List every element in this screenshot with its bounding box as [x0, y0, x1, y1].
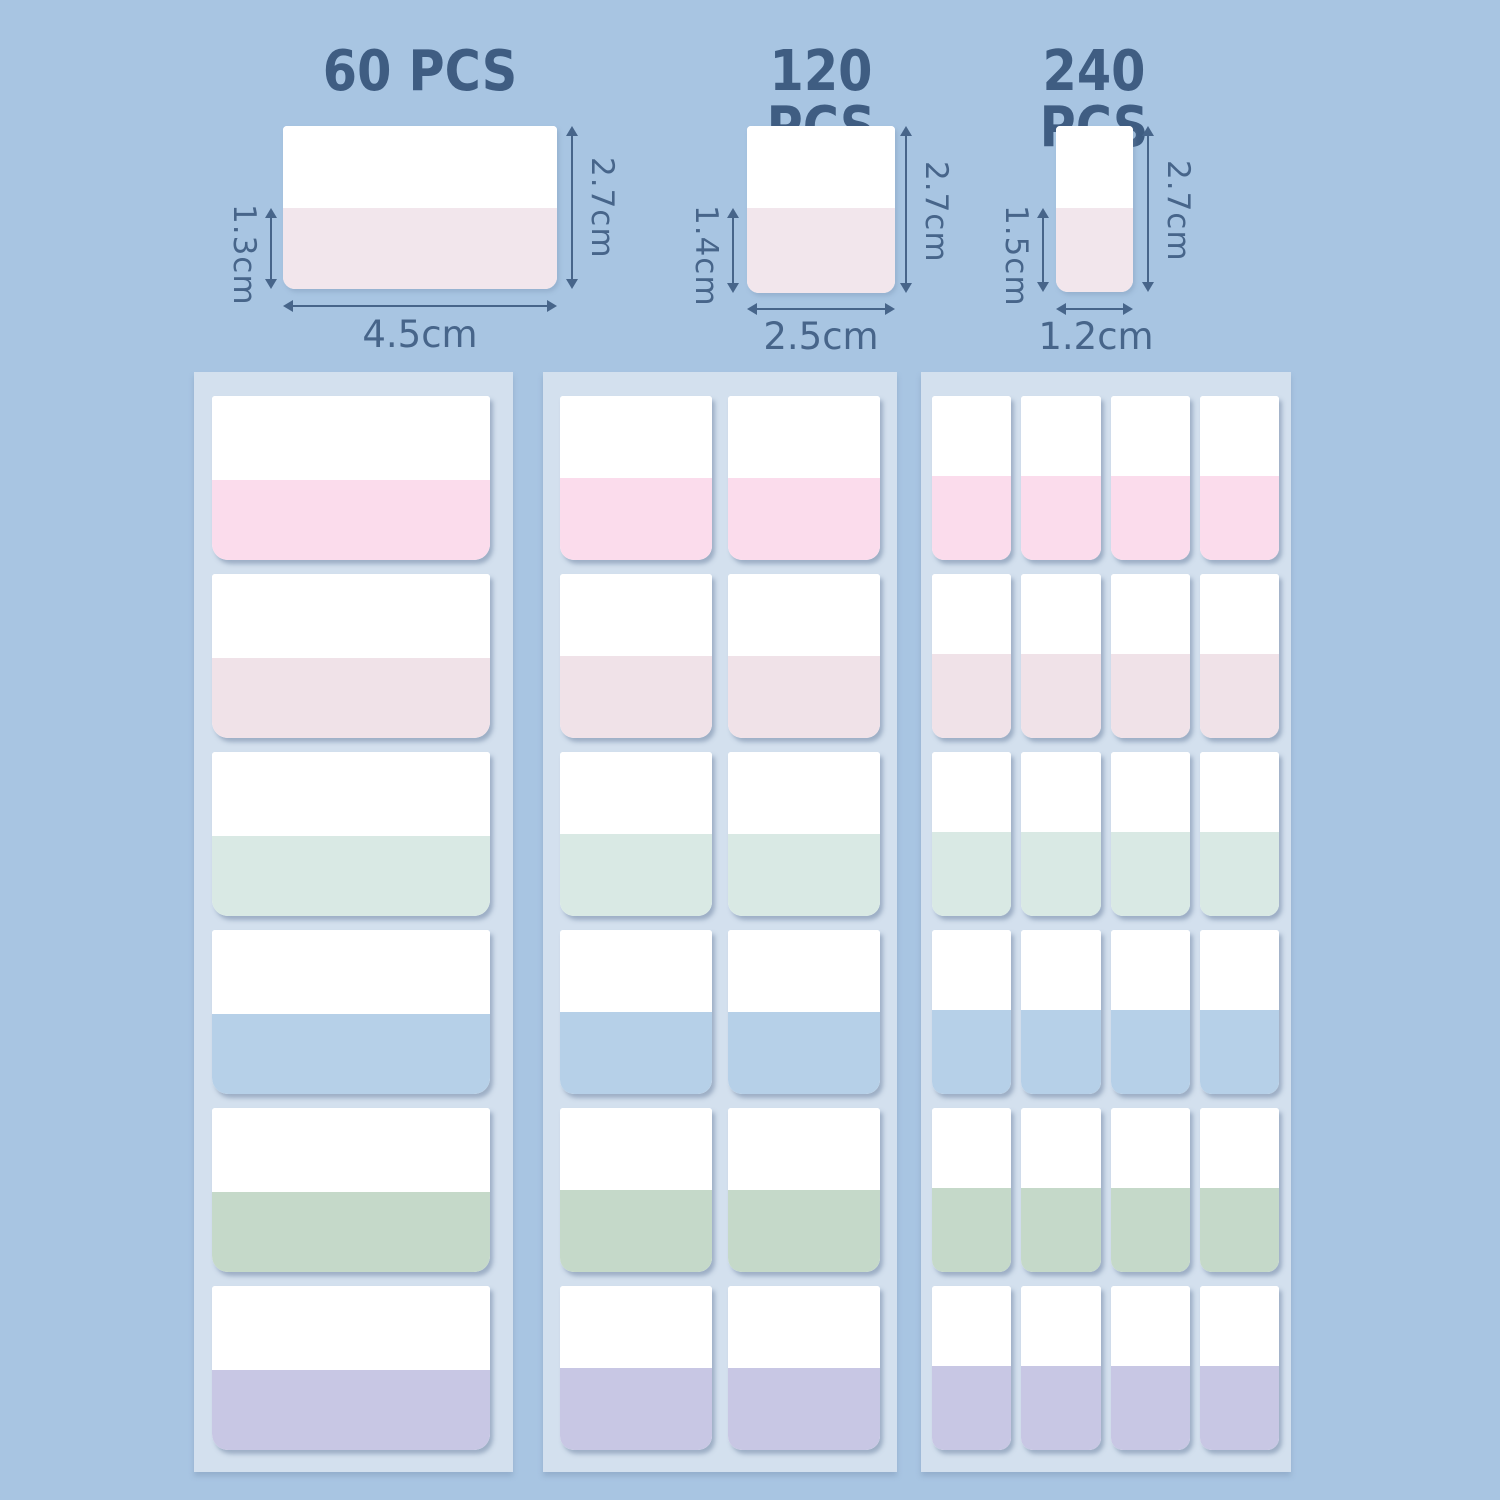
width-dimension-label: 4.5cm — [283, 313, 557, 356]
tab-mint — [932, 752, 1011, 916]
sticky-dimension-arrow — [1037, 208, 1049, 292]
width-dimension-label: 1.2cm — [1026, 315, 1166, 358]
height-dimension-arrow — [566, 126, 578, 289]
sheet-60pcs — [194, 372, 513, 1472]
sheet-240pcs — [921, 372, 1291, 1472]
tab-blue — [1200, 930, 1279, 1094]
tab-pink — [212, 396, 490, 560]
tab-row-pink — [560, 396, 880, 560]
tab-sticky-area — [747, 208, 895, 293]
tab-sage — [1200, 1108, 1279, 1272]
width-dimension-arrow — [283, 300, 557, 312]
tab-blue — [212, 930, 490, 1094]
tab-mint — [212, 752, 490, 916]
tab-blue — [1111, 930, 1190, 1094]
tab-row-pink — [932, 396, 1279, 560]
tab-row-mint — [560, 752, 880, 916]
sheet-120pcs — [543, 372, 897, 1472]
tab-blue — [932, 930, 1011, 1094]
tab-sage — [728, 1108, 880, 1272]
width-dimension-label: 2.5cm — [721, 315, 921, 358]
tab-mint — [1021, 752, 1100, 916]
tab-row-sage — [560, 1108, 880, 1272]
tab-lavender — [1200, 1286, 1279, 1450]
tab-row-blue — [932, 930, 1279, 1094]
tab-rose — [560, 574, 712, 738]
tab-blue — [560, 930, 712, 1094]
width-dimension-arrow — [1056, 303, 1133, 315]
tab-row-sage — [932, 1108, 1279, 1272]
tab-row-rose — [560, 574, 880, 738]
tab-blue — [1021, 930, 1100, 1094]
tab-mint — [728, 752, 880, 916]
tab-blue — [728, 930, 880, 1094]
product-diagram: 60 PCS 2.7cm 1.3cm 4.5cm 120 PCS 2.7cm 1… — [0, 0, 1500, 1500]
tab-mint — [1111, 752, 1190, 916]
tab-sage — [560, 1108, 712, 1272]
size-60-tab-diagram — [283, 126, 557, 289]
tab-mint — [1200, 752, 1279, 916]
height-dimension-arrow — [900, 126, 912, 293]
tab-pink — [932, 396, 1011, 560]
tab-lavender — [932, 1286, 1011, 1450]
sticky-dimension-label: 1.5cm — [996, 205, 1036, 295]
tab-row-lavender — [560, 1286, 880, 1450]
tab-lavender — [728, 1286, 880, 1450]
tab-lavender — [212, 1286, 490, 1450]
height-dimension-label: 2.7cm — [1158, 128, 1198, 294]
sticky-dimension-label: 1.3cm — [224, 204, 264, 292]
tab-lavender — [560, 1286, 712, 1450]
tab-write-area — [747, 126, 895, 208]
height-dimension-arrow — [1142, 126, 1154, 292]
height-dimension-label: 2.7cm — [916, 128, 956, 295]
tab-pink — [1021, 396, 1100, 560]
tab-sage — [1111, 1108, 1190, 1272]
tab-sage — [212, 1108, 490, 1272]
tab-pink — [728, 396, 880, 560]
tab-rose — [1200, 574, 1279, 738]
tab-write-area — [1056, 126, 1133, 208]
sticky-dimension-label: 1.4cm — [686, 205, 726, 295]
tab-sage — [932, 1108, 1011, 1272]
tab-pink — [560, 396, 712, 560]
sticky-dimension-arrow — [727, 208, 739, 293]
size-120-tab-diagram — [747, 126, 895, 293]
tab-row-blue — [560, 930, 880, 1094]
tab-rose — [728, 574, 880, 738]
tab-rose — [932, 574, 1011, 738]
size-60-label: 60 PCS — [299, 44, 540, 100]
sticky-dimension-arrow — [265, 208, 277, 289]
size-240-tab-diagram — [1056, 126, 1133, 292]
height-dimension-label: 2.7cm — [582, 126, 622, 289]
tab-row-mint — [932, 752, 1279, 916]
tab-lavender — [1021, 1286, 1100, 1450]
tab-rose — [1021, 574, 1100, 738]
width-dimension-arrow — [747, 303, 895, 315]
tab-sticky-area — [1056, 208, 1133, 292]
tab-row-lavender — [932, 1286, 1279, 1450]
tab-rose — [212, 574, 490, 738]
tab-row-rose — [932, 574, 1279, 738]
tab-sage — [1021, 1108, 1100, 1272]
tab-sticky-area — [283, 208, 557, 289]
tab-pink — [1200, 396, 1279, 560]
tab-pink — [1111, 396, 1190, 560]
tab-rose — [1111, 574, 1190, 738]
tab-lavender — [1111, 1286, 1190, 1450]
tab-write-area — [283, 126, 557, 208]
tab-mint — [560, 752, 712, 916]
